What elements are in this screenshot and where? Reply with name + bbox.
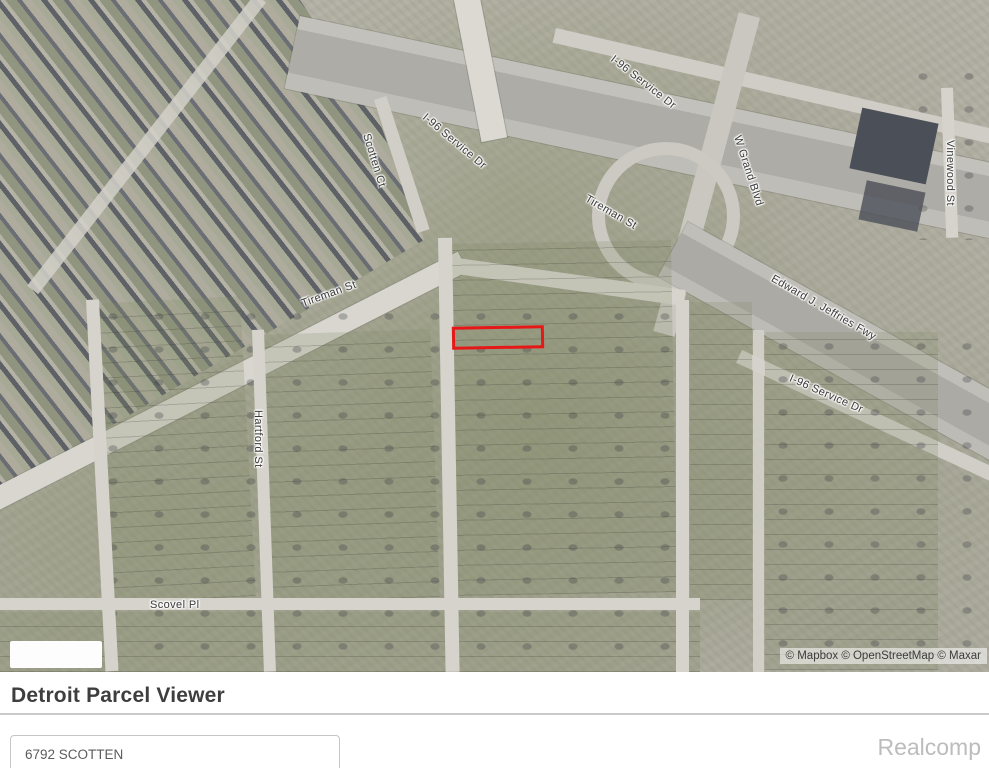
street-shape	[753, 330, 764, 672]
street-label-scovel-pl: Scovel Pl	[150, 599, 199, 611]
map-canvas[interactable]: I-96 Service Dr Scotten Ct I-96 Service …	[0, 0, 989, 672]
parcel-viewer-app: I-96 Service Dr Scotten Ct I-96 Service …	[0, 0, 989, 768]
houses-texture	[90, 300, 690, 672]
page-title: Detroit Parcel Viewer	[11, 684, 225, 708]
bottom-panel: Detroit Parcel Viewer Realcomp	[0, 672, 989, 768]
selected-parcel-highlight[interactable]	[452, 325, 544, 350]
parcel-block	[690, 302, 752, 600]
title-divider	[0, 713, 989, 715]
street-shape	[676, 300, 689, 672]
street-label-hartford-st: Hartford St	[252, 410, 264, 468]
scovel-pl-shape	[0, 598, 700, 610]
realcomp-watermark: Realcomp	[877, 734, 981, 761]
map-logo-placeholder	[10, 641, 102, 668]
map-attribution[interactable]: © Mapbox © OpenStreetMap © Maxar	[780, 648, 987, 664]
parcel-search-input[interactable]	[10, 735, 340, 768]
street-label-vinewood-st: Vinewood St	[944, 140, 956, 206]
